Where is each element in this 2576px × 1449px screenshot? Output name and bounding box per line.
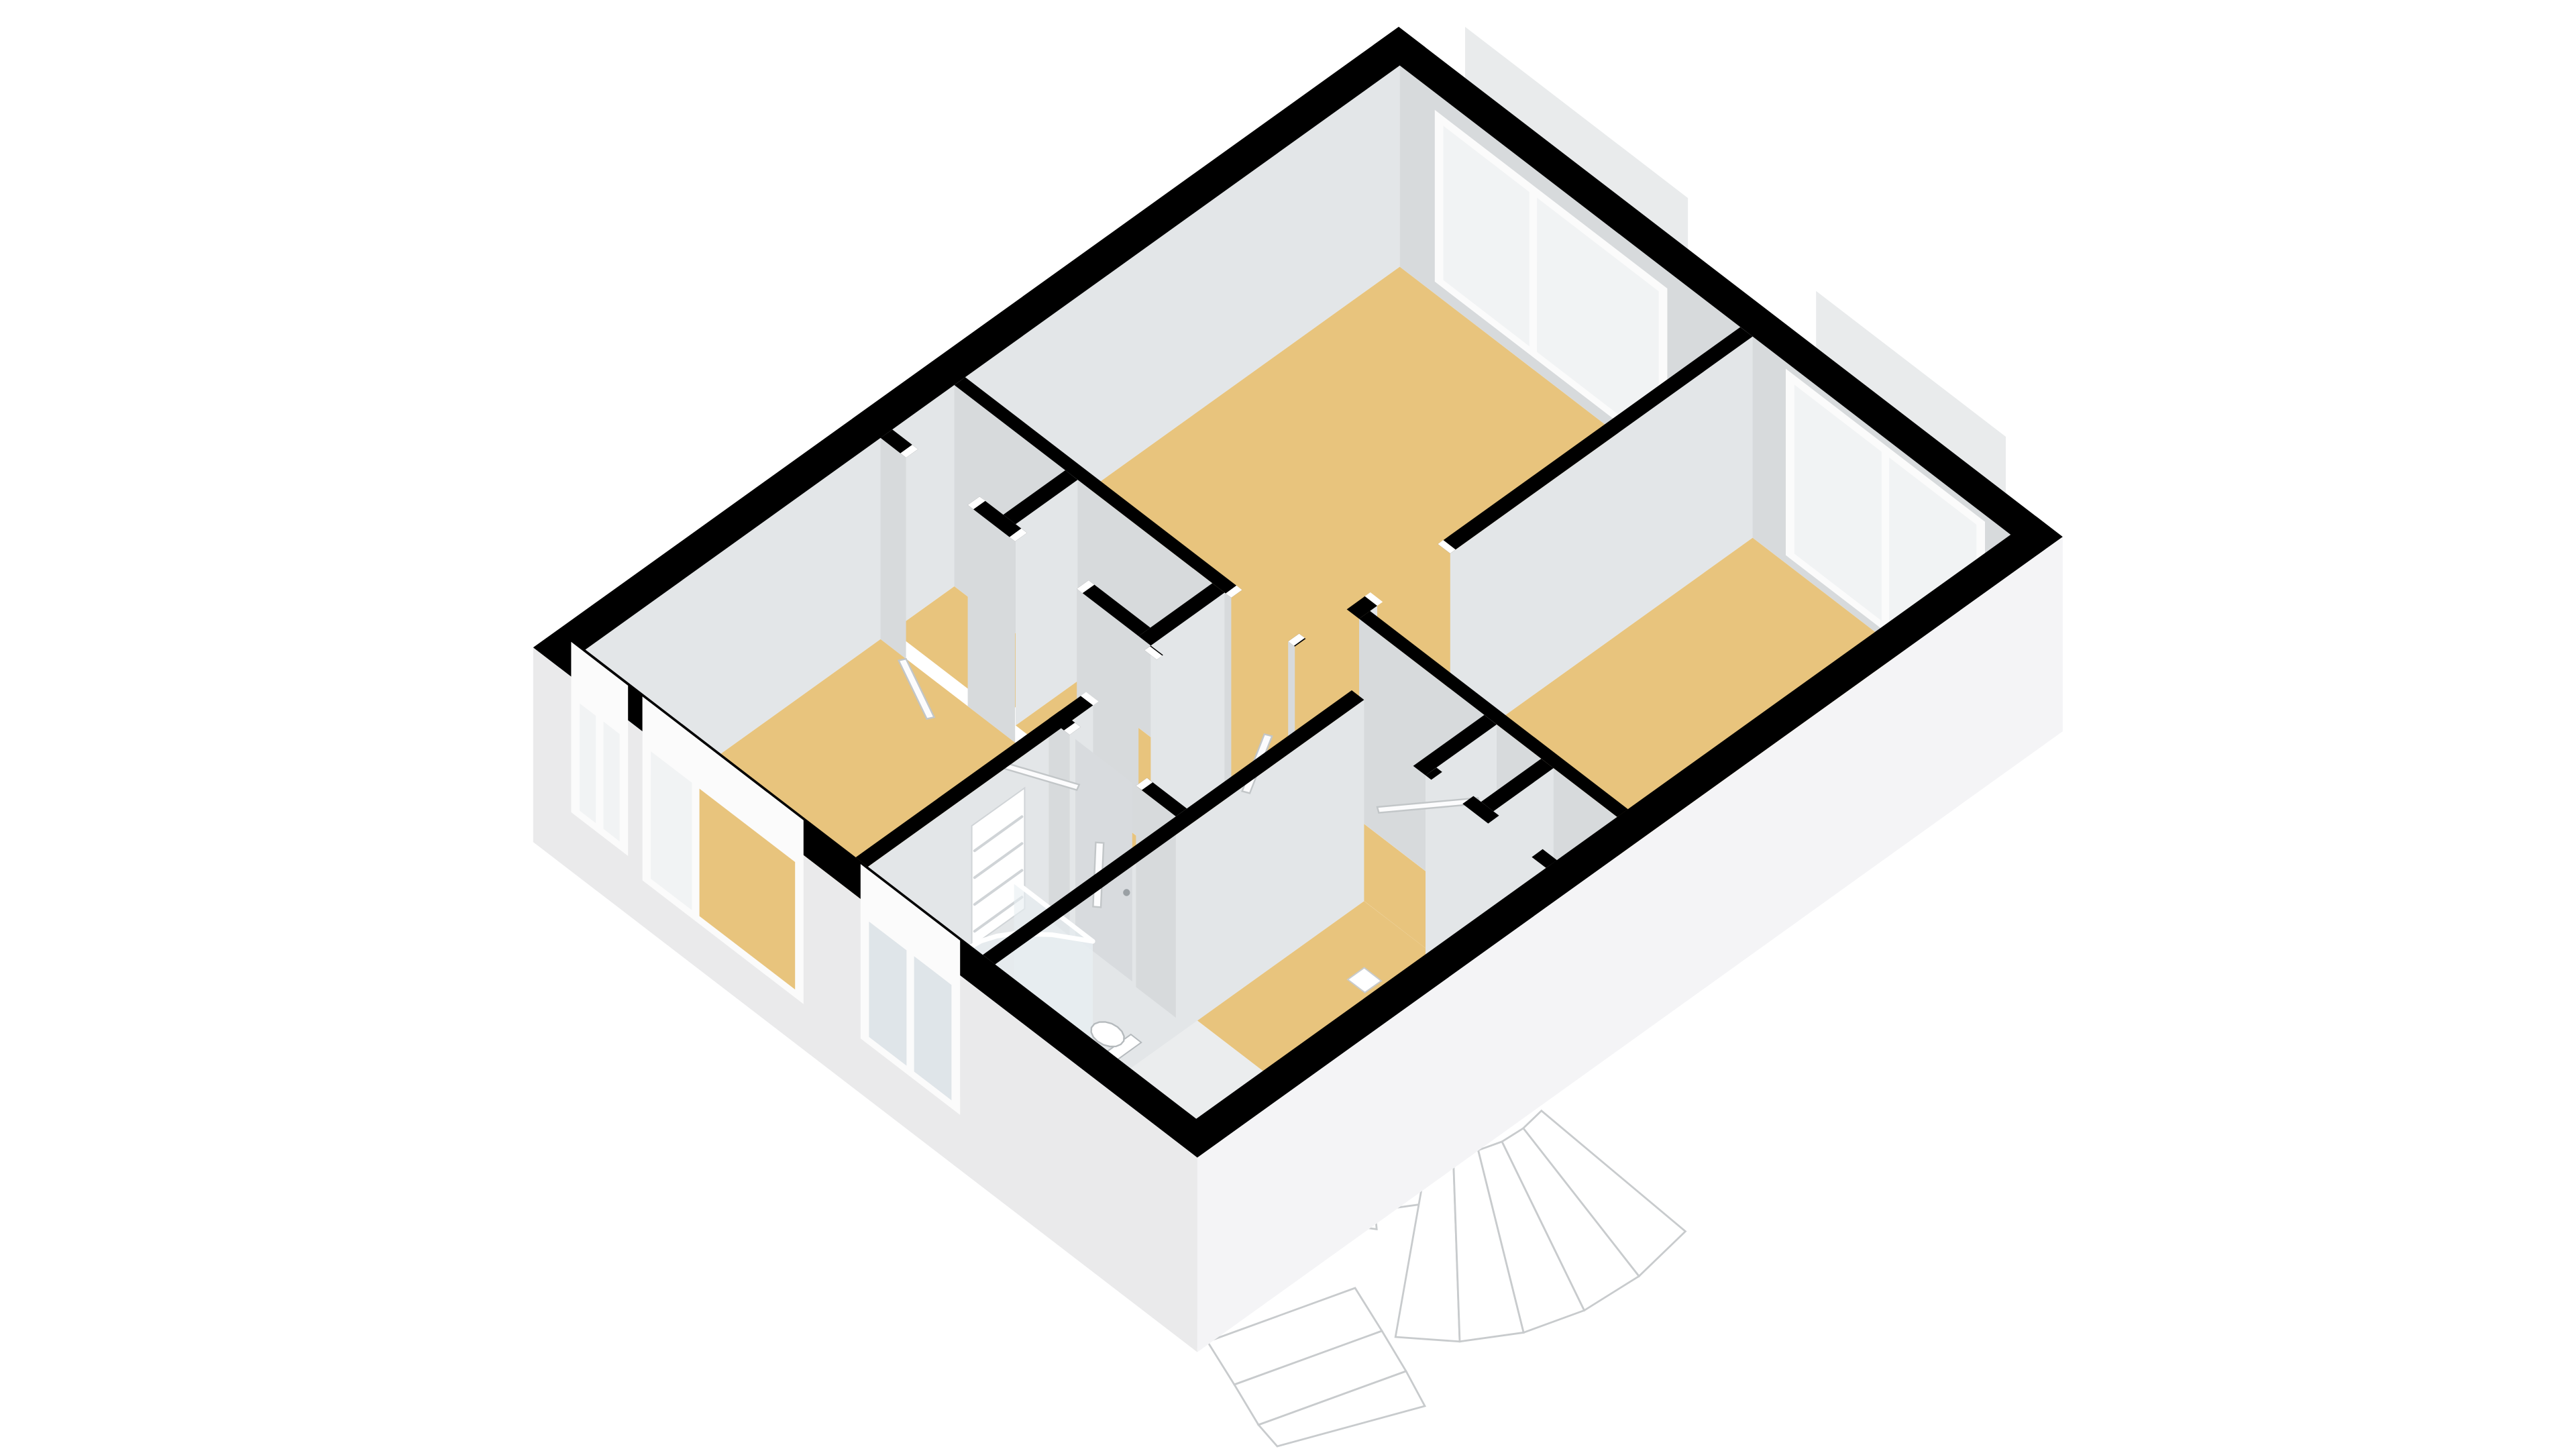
window-facade-narrow-glass — [580, 704, 596, 823]
floorplan-viewport — [0, 0, 2576, 1449]
window-facade-narrow-glass — [604, 722, 620, 842]
bathroom-door-closed-handle — [1123, 889, 1130, 896]
wall-face-bath-north-b — [1136, 786, 1175, 1018]
wall-face-closet-a-front — [881, 438, 906, 659]
wall-face-closet-mid-front — [968, 505, 1016, 743]
floorplan-3d-render — [0, 0, 2576, 1449]
